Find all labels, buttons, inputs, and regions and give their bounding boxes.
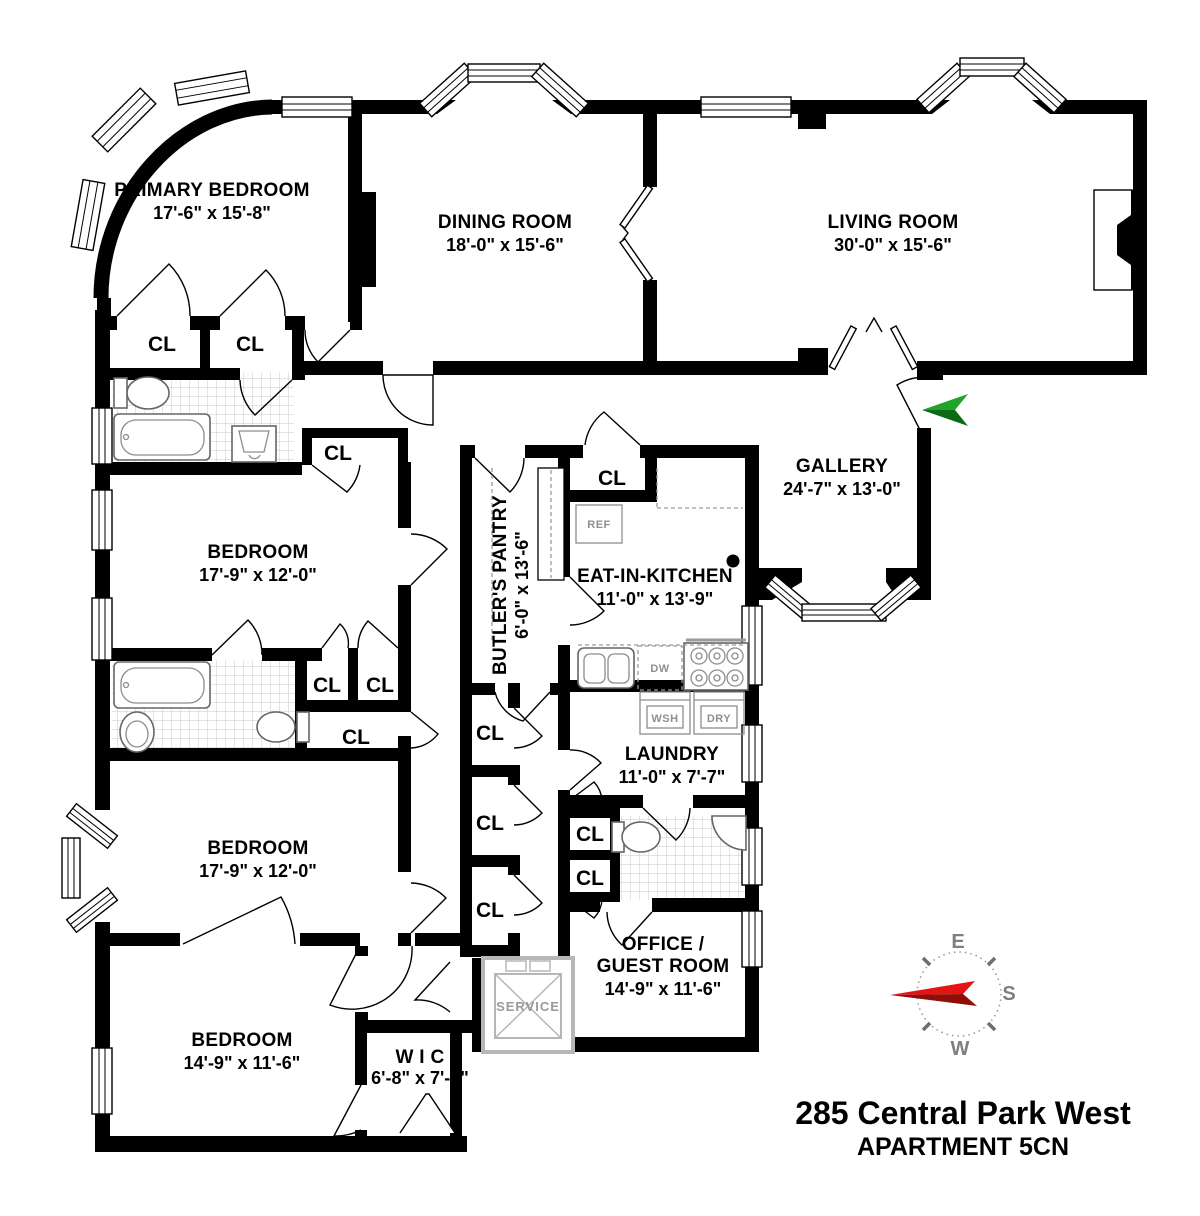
svg-text:30'-0" x 15'-6": 30'-0" x 15'-6" [834,235,952,255]
svg-text:BUTLER'S PANTRY: BUTLER'S PANTRY [490,495,511,675]
svg-text:PRIMARY BEDROOM: PRIMARY BEDROOM [114,180,310,201]
svg-text:BEDROOM: BEDROOM [207,838,308,859]
room-label-bedroom-lower: BEDROOM 14'-9" x 11'-6" [184,1030,301,1073]
dishwasher-label: DW [650,663,669,675]
compass-east: E [951,931,964,953]
svg-text:11'-0" x 13'-9": 11'-0" x 13'-9" [597,589,714,609]
closet-label: CL [236,333,264,356]
apartment-subtitle: APARTMENT 5CN [857,1133,1069,1161]
floor-plan-svg: E S W PRIMARY BEDROOM 17'-6" x 15'-8" DI… [0,0,1200,1216]
closet-label: CL [476,899,504,922]
svg-text:EAT-IN-KITCHEN: EAT-IN-KITCHEN [577,566,733,587]
room-label-laundry: LAUNDRY 11'-0" x 7'-7" [619,744,726,787]
svg-text:6'-0" x 13'-6": 6'-0" x 13'-6" [512,531,532,639]
svg-text:11'-0" x 7'-7": 11'-0" x 7'-7" [619,767,726,787]
svg-text:BEDROOM: BEDROOM [207,542,308,563]
svg-text:BEDROOM: BEDROOM [191,1030,292,1051]
bathtub-icon [114,414,210,460]
svg-text:GUEST ROOM: GUEST ROOM [597,956,730,977]
toilet-icon [114,377,169,409]
dryer-label: DRY [707,713,731,725]
closet-label: CL [576,823,604,846]
svg-text:17'-6" x 15'-8": 17'-6" x 15'-8" [153,203,271,223]
room-label-living-room: LIVING ROOM 30'-0" x 15'-6" [827,212,958,255]
compass-icon: E S W [890,931,1016,1060]
svg-text:W I C: W I C [396,1047,445,1068]
svg-text:17'-9" x 12'-0": 17'-9" x 12'-0" [199,565,317,585]
svg-text:14'-9" x 11'-6": 14'-9" x 11'-6" [605,979,722,999]
closet-label: CL [313,674,341,697]
room-label-gallery: GALLERY 24'-7" x 13'-0" [783,456,901,499]
stove-icon [684,640,748,690]
room-label-eat-in-kitchen: EAT-IN-KITCHEN 11'-0" x 13'-9" [577,566,733,609]
room-label-office-guest: OFFICE / GUEST ROOM 14'-9" x 11'-6" [597,934,730,999]
service-label: SERVICE [496,999,560,1014]
closet-label: CL [342,726,370,749]
washer-label: WSH [651,713,678,725]
closet-label: CL [324,442,352,465]
room-label-bedroom-middle: BEDROOM 17'-9" x 12'-0" [199,838,317,881]
svg-text:DINING ROOM: DINING ROOM [438,212,572,233]
room-label-dining-room: DINING ROOM 18'-0" x 15'-6" [438,212,572,255]
svg-text:24'-7" x 13'-0": 24'-7" x 13'-0" [783,479,901,499]
bathtub-icon [114,662,210,708]
closet-label: CL [576,867,604,890]
svg-text:OFFICE /: OFFICE / [622,934,705,955]
closet-label: CL [148,333,176,356]
compass-west: W [951,1038,970,1060]
sink-icon [120,712,154,752]
svg-text:18'-0" x 15'-6": 18'-0" x 15'-6" [446,235,564,255]
svg-text:GALLERY: GALLERY [796,456,888,477]
toilet-icon [612,822,660,852]
room-labels: PRIMARY BEDROOM 17'-6" x 15'-8" DINING R… [114,180,958,1088]
floor-plan-page: E S W PRIMARY BEDROOM 17'-6" x 15'-8" DI… [0,0,1200,1216]
toilet-icon [257,712,309,742]
svg-text:14'-9" x 11'-6": 14'-9" x 11'-6" [184,1053,301,1073]
refrigerator-label: REF [587,519,611,531]
closet-label: CL [476,812,504,835]
room-label-butlers-pantry: BUTLER'S PANTRY 6'-0" x 13'-6" [490,495,532,675]
svg-text:6'-8" x 7'-4": 6'-8" x 7'-4" [371,1068,469,1088]
svg-text:17'-9" x 12'-0": 17'-9" x 12'-0" [199,861,317,881]
address-title: 285 Central Park West [795,1095,1131,1131]
kitchen-sink-icon [578,648,634,688]
room-label-primary-bedroom: PRIMARY BEDROOM 17'-6" x 15'-8" [114,180,310,223]
compass-south: S [1002,983,1015,1005]
svg-text:LIVING ROOM: LIVING ROOM [827,212,958,233]
svg-text:LAUNDRY: LAUNDRY [625,744,719,765]
closet-label: CL [366,674,394,697]
entry-arrow-icon [922,394,968,426]
room-label-bedroom-upper: BEDROOM 17'-9" x 12'-0" [199,542,317,585]
sink-icon [232,426,276,462]
closet-label: CL [476,722,504,745]
footer: 285 Central Park West APARTMENT 5CN [795,1095,1131,1161]
closet-label: CL [598,467,626,490]
